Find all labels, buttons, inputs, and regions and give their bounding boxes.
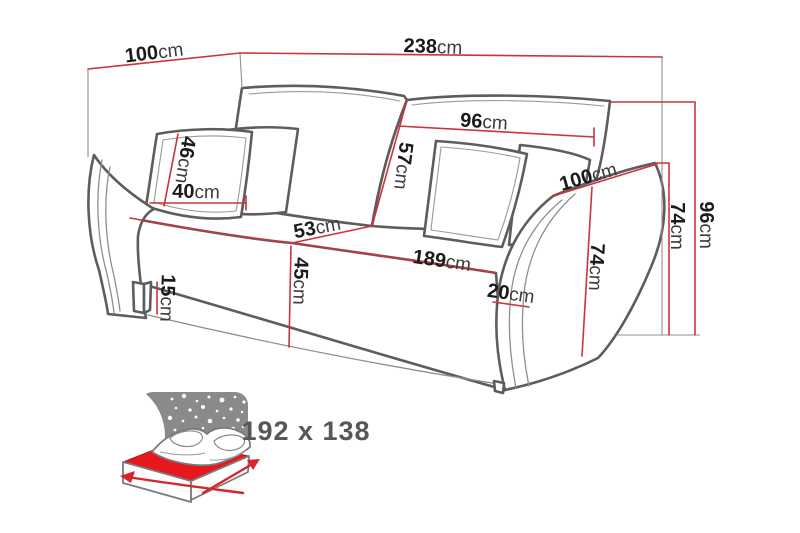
dim-unit: cm [482, 112, 509, 135]
dim-value: 238 [403, 35, 437, 58]
sofa-leg-front-left [133, 282, 144, 313]
dim-label-total-height: 96cm [695, 201, 717, 249]
dim-unit: cm [666, 224, 687, 249]
dim-label-back-cushion-width: 96cm [459, 109, 508, 134]
sofa-foot-front-right [494, 381, 504, 393]
dim-unit: cm [389, 163, 413, 191]
dim-value: 20 [486, 280, 511, 305]
dim-value: 15 [156, 274, 179, 297]
dim-value: 96 [695, 201, 717, 223]
dim-value: 96 [459, 109, 483, 132]
dim-value: 40 [172, 181, 195, 203]
sofa-dimensions-diagram: 100cm 238cm 96cm 57cm 46cm 40cm 53cm 45c… [0, 0, 800, 533]
dim-value: 45 [289, 257, 312, 280]
dim-unit: cm [288, 279, 310, 305]
dim-label-total-depth: 100cm [124, 38, 185, 67]
dim-unit: cm [314, 214, 343, 239]
sleeping-area-size-label: 192 x 138 [241, 416, 370, 446]
dim-unit: cm [444, 252, 472, 276]
dim-value: 74 [666, 202, 688, 225]
seat-and-base [130, 218, 505, 390]
dim-unit: cm [695, 223, 716, 248]
dim-value: 189 [411, 246, 447, 272]
dim-unit: cm [194, 182, 220, 203]
dim-unit: cm [157, 39, 185, 63]
dim-label-total-width: 238cm [403, 35, 462, 59]
dim-label-seat-height: 45cm [288, 257, 312, 305]
dim-label-leg-height: 15cm [155, 274, 179, 322]
sofa-drawing [88, 86, 664, 393]
dim-unit: cm [508, 284, 536, 308]
dim-label-armrest-height: 74cm [666, 202, 688, 250]
dim-unit: cm [437, 37, 463, 59]
dim-unit: cm [584, 265, 606, 291]
diagram-canvas: 100cm 238cm 96cm 57cm 46cm 40cm 53cm 45c… [0, 0, 800, 533]
dim-value: 57 [392, 141, 417, 166]
dim-unit: cm [155, 296, 177, 322]
dim-value: 74 [585, 243, 608, 267]
dim-label-armrest-height-inner: 74cm [584, 243, 608, 292]
dim-label-pillow-width: 40cm [172, 181, 220, 204]
sofa-leg-front-left-side [144, 282, 151, 313]
extension-line [240, 53, 242, 88]
sleeping-area-icon [77, 385, 260, 502]
dim-value: 100 [124, 42, 160, 68]
